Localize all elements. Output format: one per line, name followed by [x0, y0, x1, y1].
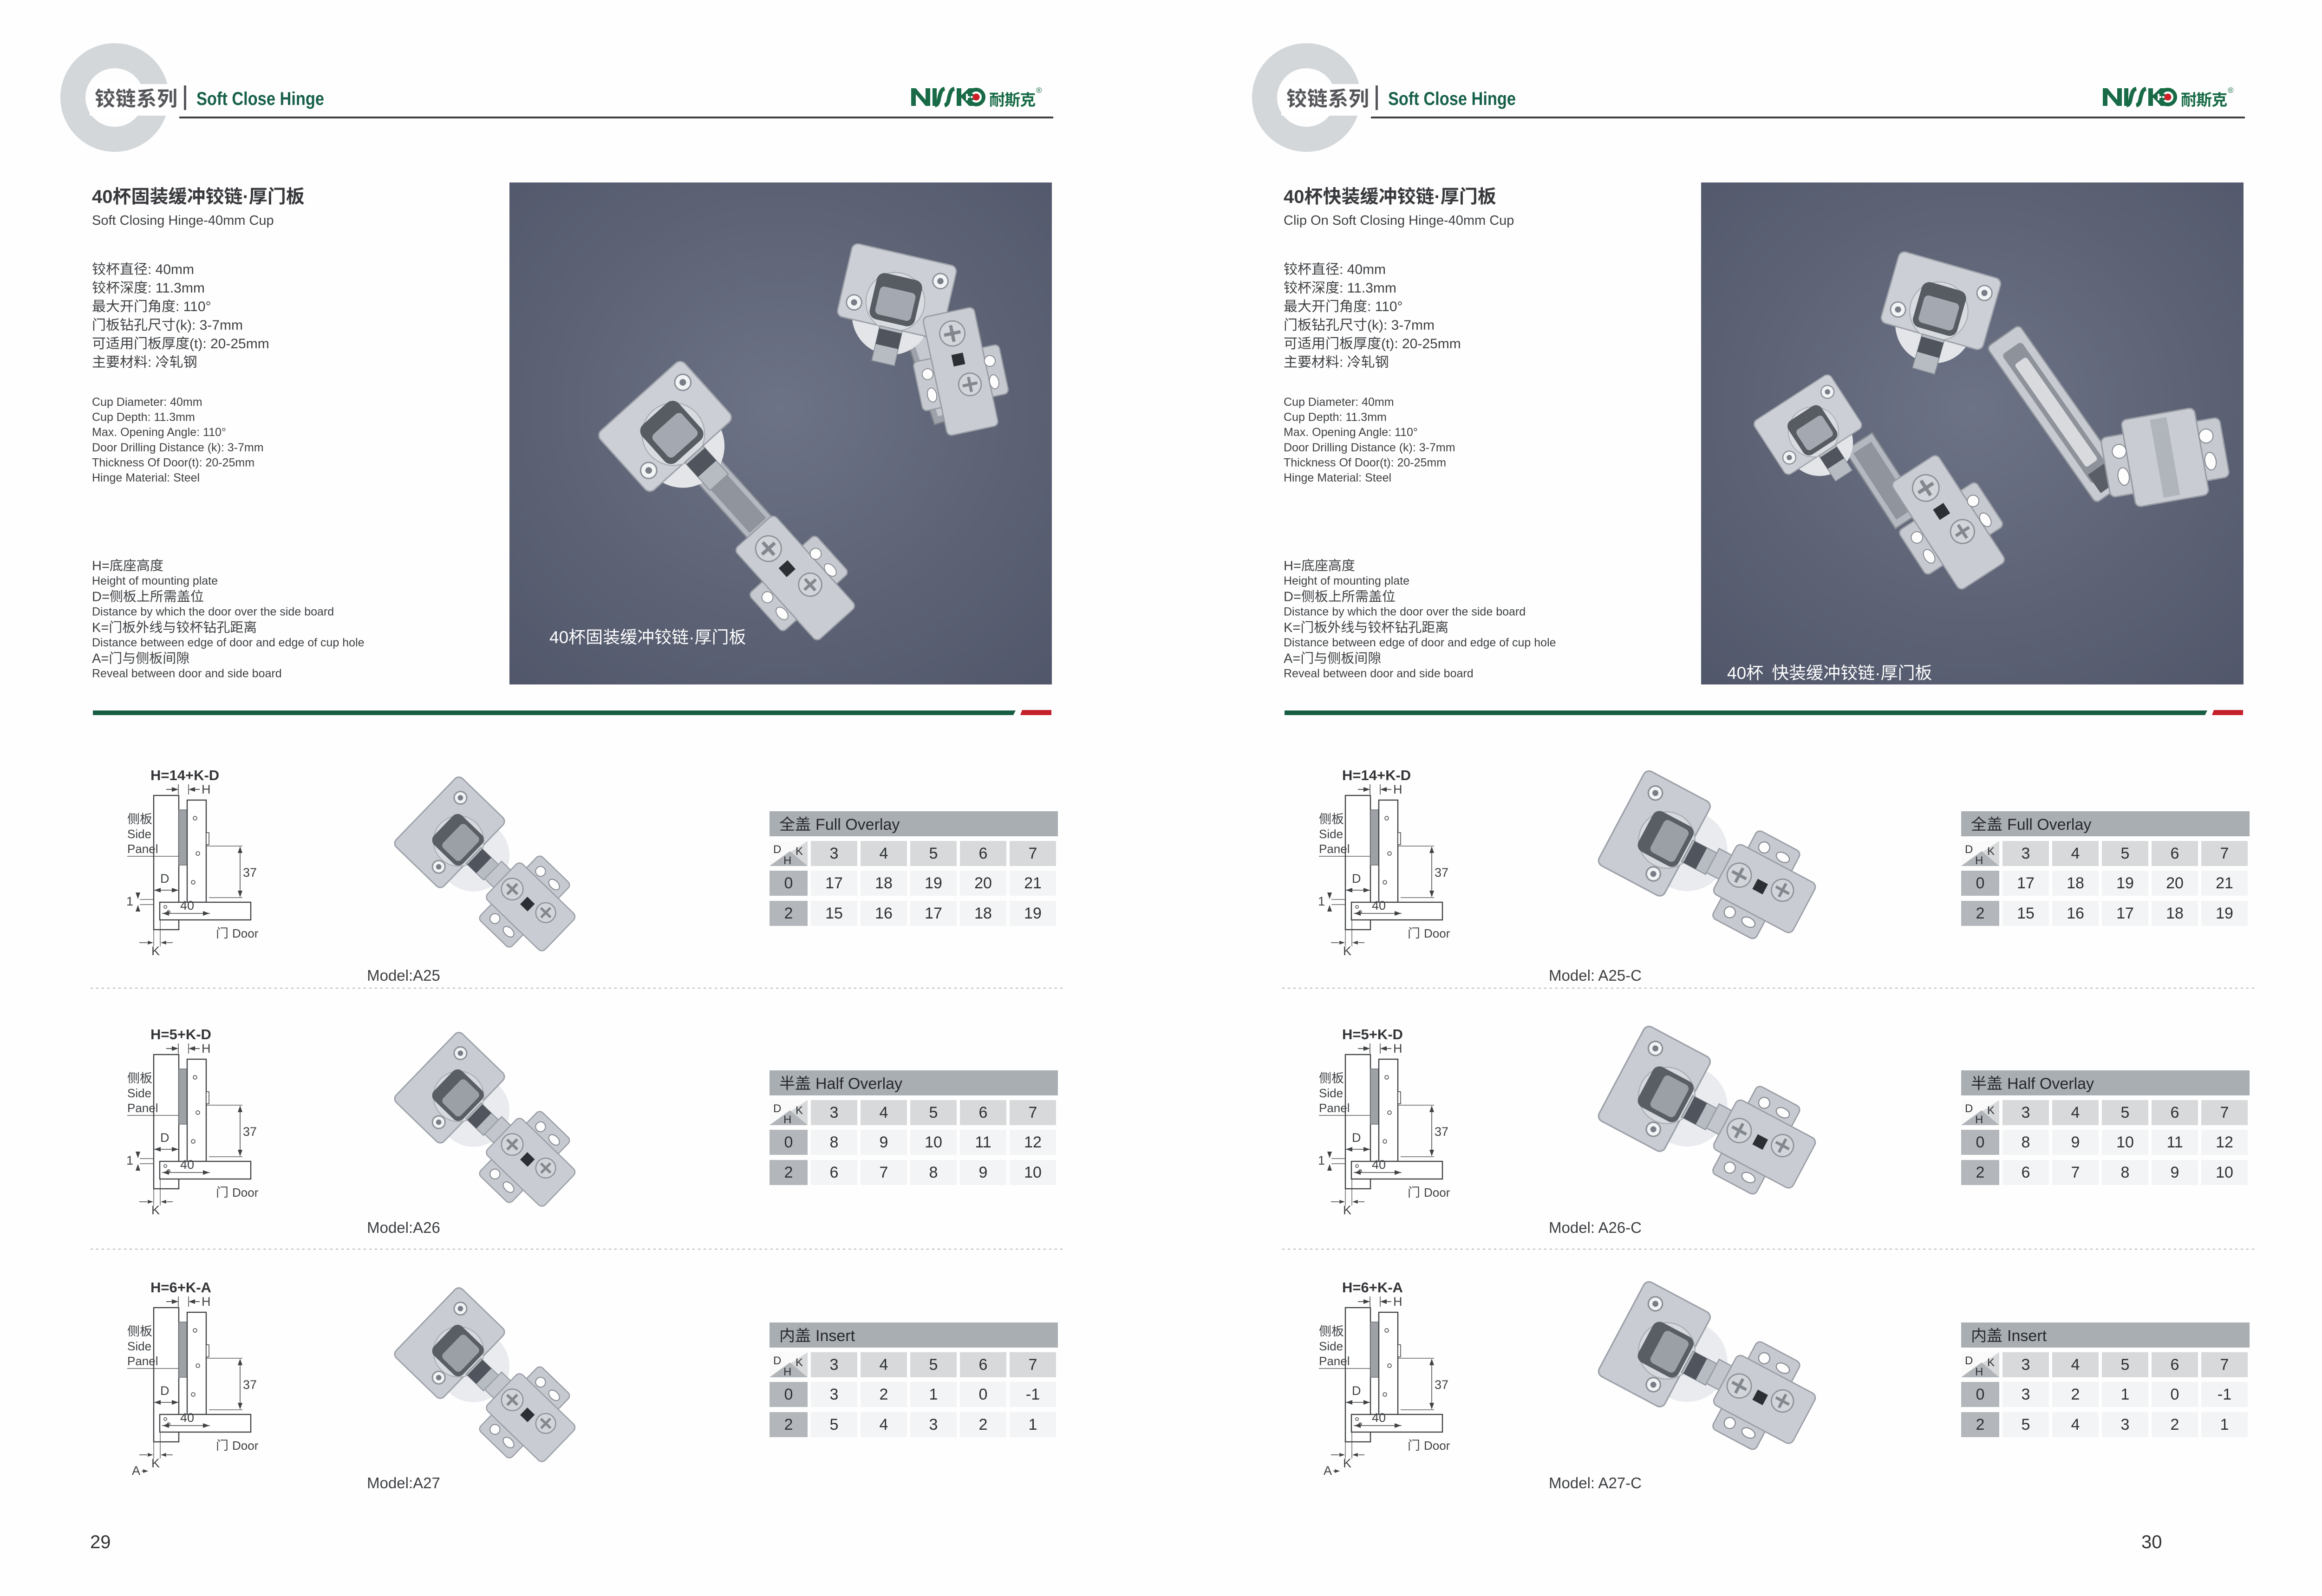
svg-text:H=6+K-A: H=6+K-A: [150, 1279, 211, 1296]
svg-text:Model: A25-C: Model: A25-C: [1549, 967, 1642, 984]
svg-text:Distance between edge of door: Distance between edge of door and edge o…: [92, 636, 365, 649]
svg-text:Panel: Panel: [1319, 1354, 1350, 1368]
svg-text:Panel: Panel: [1319, 1101, 1350, 1115]
svg-text:Side: Side: [127, 827, 151, 841]
svg-text:Model: A26-C: Model: A26-C: [1549, 1219, 1642, 1236]
svg-text:H=6+K-A: H=6+K-A: [1342, 1279, 1403, 1296]
svg-text:11: 11: [2166, 1133, 2183, 1151]
svg-text:2: 2: [784, 1416, 793, 1433]
svg-text:17: 17: [2116, 905, 2134, 922]
svg-text:2: 2: [1976, 1164, 1985, 1181]
svg-text:: 40mm: : 40mm: [148, 262, 194, 277]
svg-text:7: 7: [1029, 1104, 1037, 1121]
svg-text:21: 21: [1024, 874, 1042, 892]
svg-text:Hinge Material: Steel: Hinge Material: Steel: [92, 471, 200, 484]
svg-text:7: 7: [880, 1164, 888, 1181]
svg-text:8: 8: [2121, 1164, 2130, 1181]
svg-text:3: 3: [830, 1356, 839, 1374]
svg-text:K: K: [1987, 1356, 1995, 1369]
svg-text:D: D: [1965, 1355, 1973, 1367]
svg-text:Reveal between door and side b: Reveal between door and side board: [92, 667, 282, 680]
svg-text:3: 3: [830, 845, 839, 862]
svg-text:40: 40: [1284, 187, 1304, 207]
svg-text:D: D: [773, 843, 781, 856]
svg-text:5: 5: [830, 1416, 839, 1433]
svg-text:4: 4: [2071, 845, 2080, 862]
svg-text:0: 0: [1976, 874, 1985, 892]
svg-text:H: H: [1393, 782, 1402, 796]
svg-text:Max. Opening Angle: 110°: Max. Opening Angle: 110°: [92, 426, 226, 439]
svg-text:Full Overlay: Full Overlay: [2007, 816, 2091, 834]
svg-text:16: 16: [875, 905, 893, 922]
svg-text:2: 2: [2071, 1386, 2080, 1403]
svg-text:(k): 3-7mm: (k): 3-7mm: [176, 318, 243, 333]
svg-text:Cup Diameter: 40mm: Cup Diameter: 40mm: [92, 396, 202, 409]
svg-text:16: 16: [2067, 905, 2084, 922]
svg-text:1: 1: [1318, 1153, 1325, 1167]
svg-text:8: 8: [830, 1133, 839, 1151]
svg-text:D: D: [773, 1102, 781, 1115]
svg-text:1: 1: [126, 894, 133, 908]
svg-text:K: K: [151, 944, 160, 958]
svg-text:6: 6: [2022, 1164, 2030, 1181]
svg-text:H=5+K-D: H=5+K-D: [1342, 1026, 1403, 1042]
svg-text:D=: D=: [92, 590, 110, 605]
svg-text:Cup Depth: 11.3mm: Cup Depth: 11.3mm: [1284, 411, 1387, 424]
svg-text:9: 9: [979, 1164, 988, 1181]
svg-text:H=5+K-D: H=5+K-D: [150, 1026, 211, 1042]
svg-text:Distance between edge of door: Distance between edge of door and edge o…: [1284, 636, 1556, 649]
svg-text:Half Overlay: Half Overlay: [2007, 1075, 2094, 1093]
svg-text:40: 40: [180, 899, 194, 912]
svg-text:Clip On Soft Closing Hinge-40m: Clip On Soft Closing Hinge-40mm Cup: [1284, 213, 1514, 228]
svg-text:Soft Close Hinge: Soft Close Hinge: [1388, 89, 1516, 109]
svg-text:19: 19: [2216, 905, 2233, 922]
svg-text:D: D: [160, 1384, 170, 1398]
svg-text:29: 29: [90, 1532, 111, 1552]
svg-text:4: 4: [2071, 1416, 2080, 1433]
svg-text:Door: Door: [232, 1439, 259, 1453]
svg-text:0: 0: [979, 1386, 988, 1403]
svg-text:D: D: [1965, 1102, 1973, 1115]
svg-text:·: ·: [1875, 664, 1880, 683]
svg-text:2: 2: [979, 1416, 988, 1433]
svg-text:17: 17: [2017, 874, 2035, 892]
svg-text:A: A: [132, 1464, 140, 1478]
svg-text:7: 7: [2220, 1356, 2229, 1374]
svg-text:3: 3: [2022, 845, 2030, 862]
svg-text:Model:A25: Model:A25: [367, 967, 440, 984]
svg-text:7: 7: [1029, 845, 1037, 862]
svg-text:37: 37: [243, 1125, 257, 1139]
svg-text:2: 2: [2171, 1416, 2179, 1433]
svg-text:5: 5: [929, 845, 938, 862]
svg-text:Height of mounting plate: Height of mounting plate: [1284, 574, 1409, 587]
svg-text:D=: D=: [1284, 590, 1301, 605]
svg-text:: 110°: : 110°: [1367, 299, 1403, 314]
svg-text:21: 21: [2216, 874, 2233, 892]
svg-text:Door: Door: [1424, 1439, 1450, 1453]
svg-text:H: H: [783, 854, 791, 867]
svg-text:1: 1: [126, 1153, 133, 1167]
svg-text:37: 37: [243, 866, 257, 879]
svg-text:20: 20: [974, 874, 992, 892]
svg-text:Panel: Panel: [1319, 842, 1350, 856]
svg-text:Door: Door: [232, 1186, 259, 1199]
svg-text:(t): 20-25mm: (t): 20-25mm: [1381, 336, 1461, 352]
svg-text:6: 6: [2171, 1356, 2179, 1374]
svg-text:: 11.3mm: : 11.3mm: [148, 280, 205, 296]
svg-text:3: 3: [2022, 1104, 2030, 1121]
svg-text:: 40mm: : 40mm: [1339, 262, 1386, 277]
svg-text:1: 1: [1318, 894, 1325, 908]
svg-text:K: K: [151, 1456, 160, 1470]
svg-text:2: 2: [784, 1164, 793, 1181]
svg-text:D: D: [1352, 1384, 1361, 1398]
svg-text:H: H: [783, 1366, 791, 1378]
svg-text:8: 8: [2022, 1133, 2030, 1151]
svg-text:®: ®: [1036, 86, 1042, 95]
svg-text:18: 18: [2166, 905, 2184, 922]
svg-text:5: 5: [929, 1356, 938, 1374]
svg-text:9: 9: [880, 1133, 888, 1151]
svg-text::: :: [1339, 355, 1343, 370]
svg-text:10: 10: [2216, 1164, 2233, 1181]
svg-text:12: 12: [2216, 1133, 2233, 1151]
svg-text:K: K: [796, 1104, 803, 1117]
svg-text:3: 3: [2022, 1386, 2030, 1403]
svg-text:Cup Depth: 11.3mm: Cup Depth: 11.3mm: [92, 411, 195, 424]
svg-text:D: D: [1352, 872, 1361, 886]
svg-text:40: 40: [1372, 899, 1386, 912]
svg-text:H=: H=: [92, 559, 110, 573]
svg-text:A: A: [1324, 1464, 1332, 1478]
svg-text:0: 0: [1976, 1386, 1985, 1403]
svg-text:18: 18: [2067, 874, 2084, 892]
svg-text:6: 6: [979, 1356, 988, 1374]
svg-text::: :: [148, 355, 151, 370]
svg-text:Panel: Panel: [127, 1354, 158, 1368]
svg-text:D: D: [773, 1355, 781, 1367]
svg-text:K: K: [1343, 944, 1351, 958]
svg-text:Door: Door: [1424, 1186, 1450, 1199]
svg-text:K=: K=: [92, 620, 109, 635]
svg-text:: 110°: : 110°: [176, 299, 211, 314]
svg-text:2: 2: [1976, 905, 1985, 922]
svg-text:1: 1: [2121, 1386, 2130, 1403]
svg-text:H: H: [1975, 1114, 1983, 1126]
svg-text:7: 7: [2220, 1104, 2229, 1121]
svg-text:5: 5: [2121, 1356, 2130, 1374]
svg-text:Model: A27-C: Model: A27-C: [1549, 1474, 1642, 1492]
svg-text:30: 30: [2141, 1532, 2162, 1552]
svg-text:10: 10: [1024, 1164, 1042, 1181]
svg-text:D: D: [1352, 1131, 1361, 1145]
svg-text:3: 3: [830, 1386, 839, 1403]
svg-text:Side: Side: [1319, 1086, 1343, 1100]
svg-text:40: 40: [549, 628, 568, 647]
svg-text:5: 5: [2121, 1104, 2130, 1121]
svg-text:K: K: [1987, 1104, 1995, 1117]
svg-text:37: 37: [1435, 1378, 1448, 1392]
svg-text:9: 9: [2071, 1133, 2080, 1151]
svg-text:Height of mounting plate: Height of mounting plate: [92, 574, 218, 587]
svg-text:18: 18: [974, 905, 992, 922]
svg-text:15: 15: [825, 905, 843, 922]
svg-text:K=: K=: [1284, 620, 1300, 635]
svg-text:40: 40: [1372, 1158, 1386, 1172]
svg-text:6: 6: [830, 1164, 839, 1181]
svg-text:1: 1: [929, 1386, 938, 1403]
svg-text:Door: Door: [1424, 926, 1450, 940]
svg-text:18: 18: [875, 874, 893, 892]
svg-text:0: 0: [784, 874, 793, 892]
svg-text:3: 3: [2121, 1416, 2130, 1433]
svg-text:40: 40: [1372, 1411, 1386, 1425]
svg-text:K: K: [796, 845, 803, 858]
svg-text:Half Overlay: Half Overlay: [815, 1075, 902, 1093]
svg-text:Panel: Panel: [127, 1101, 158, 1115]
svg-text:1: 1: [1029, 1416, 1037, 1433]
svg-text:Door Drilling Distance (k): 3-: Door Drilling Distance (k): 3-7mm: [1284, 441, 1455, 454]
svg-text:37: 37: [1435, 1125, 1448, 1139]
svg-text:3: 3: [929, 1416, 938, 1433]
svg-text:Insert: Insert: [2007, 1327, 2047, 1345]
svg-text:·: ·: [242, 187, 248, 207]
svg-text:K: K: [1343, 1203, 1351, 1217]
svg-text:K: K: [1987, 845, 1995, 858]
svg-text:H: H: [202, 1042, 211, 1055]
svg-text:37: 37: [243, 1378, 257, 1392]
svg-text:A=: A=: [92, 651, 109, 666]
svg-text:Thickness Of Door(t): 20-25mm: Thickness Of Door(t): 20-25mm: [92, 456, 254, 469]
svg-text:40: 40: [92, 187, 113, 207]
svg-text:A=: A=: [1284, 651, 1300, 666]
svg-text:20: 20: [2166, 874, 2184, 892]
svg-text:4: 4: [2071, 1104, 2080, 1121]
svg-text:7: 7: [2220, 845, 2229, 862]
svg-text:10: 10: [925, 1133, 942, 1151]
svg-text:-1: -1: [1026, 1386, 1040, 1403]
svg-text:17: 17: [825, 874, 843, 892]
svg-text:2: 2: [880, 1386, 888, 1403]
svg-text:·: ·: [689, 628, 694, 647]
svg-text:Soft Closing Hinge-40mm Cup: Soft Closing Hinge-40mm Cup: [92, 213, 274, 228]
svg-text:H=: H=: [1284, 559, 1301, 573]
svg-text:Side: Side: [127, 1086, 151, 1100]
svg-text:9: 9: [2171, 1164, 2179, 1181]
svg-text:H: H: [1975, 1366, 1983, 1378]
svg-text:5: 5: [2121, 845, 2130, 862]
svg-text:4: 4: [880, 845, 888, 862]
svg-text:K: K: [1343, 1456, 1351, 1470]
svg-text:11: 11: [975, 1133, 991, 1151]
svg-text:2: 2: [1976, 1416, 1985, 1433]
svg-text:12: 12: [1024, 1133, 1042, 1151]
svg-text:H=14+K-D: H=14+K-D: [150, 767, 219, 783]
svg-text:H: H: [1393, 1042, 1402, 1055]
svg-text:5: 5: [2022, 1416, 2030, 1433]
svg-text:(t): 20-25mm: (t): 20-25mm: [189, 336, 269, 352]
svg-text:Cup Diameter: 40mm: Cup Diameter: 40mm: [1284, 396, 1394, 409]
svg-text:0: 0: [1976, 1133, 1985, 1151]
svg-text:6: 6: [2171, 1104, 2179, 1121]
svg-text:Full Overlay: Full Overlay: [815, 816, 900, 834]
svg-text:Side: Side: [1319, 1339, 1343, 1353]
svg-text:Side: Side: [1319, 827, 1343, 841]
svg-text:4: 4: [880, 1104, 888, 1121]
svg-text:Distance by which the door ove: Distance by which the door over the side…: [92, 606, 334, 619]
svg-text:4: 4: [2071, 1356, 2080, 1374]
svg-text:Soft Close Hinge: Soft Close Hinge: [196, 89, 324, 109]
svg-text:19: 19: [2116, 874, 2134, 892]
svg-text:H: H: [1393, 1295, 1402, 1309]
svg-text:H: H: [1975, 854, 1983, 867]
svg-text:Door Drilling Distance (k): 3-: Door Drilling Distance (k): 3-7mm: [92, 441, 264, 454]
svg-text:Max. Opening Angle: 110°: Max. Opening Angle: 110°: [1284, 426, 1418, 439]
svg-text:3: 3: [2022, 1356, 2030, 1374]
svg-text:H: H: [783, 1114, 791, 1126]
svg-text:H: H: [202, 782, 211, 796]
svg-text:15: 15: [2017, 905, 2035, 922]
svg-text:H: H: [202, 1295, 211, 1309]
svg-text:-1: -1: [2218, 1386, 2231, 1403]
svg-text:Hinge Material: Steel: Hinge Material: Steel: [1284, 471, 1391, 484]
svg-text:D: D: [1965, 843, 1973, 856]
svg-text:8: 8: [929, 1164, 938, 1181]
svg-text:Thickness Of Door(t): 20-25mm: Thickness Of Door(t): 20-25mm: [1284, 456, 1446, 469]
svg-text:37: 37: [1435, 866, 1448, 879]
svg-text:40: 40: [180, 1158, 194, 1172]
svg-text:Model:A27: Model:A27: [367, 1474, 440, 1492]
svg-text:4: 4: [880, 1356, 888, 1374]
svg-text:Model:A26: Model:A26: [367, 1219, 440, 1236]
svg-text:2: 2: [784, 905, 793, 922]
svg-text:40: 40: [1727, 664, 1746, 683]
svg-text:6: 6: [2171, 845, 2179, 862]
svg-text:(k): 3-7mm: (k): 3-7mm: [1367, 318, 1435, 333]
svg-text:10: 10: [2116, 1133, 2134, 1151]
svg-text:Insert: Insert: [815, 1327, 855, 1345]
svg-text:17: 17: [925, 905, 942, 922]
svg-text:3: 3: [830, 1104, 839, 1121]
svg-text:Panel: Panel: [127, 842, 158, 856]
svg-text:1: 1: [2220, 1416, 2229, 1433]
svg-text:19: 19: [925, 874, 942, 892]
svg-text:19: 19: [1024, 905, 1042, 922]
svg-text:®: ®: [2228, 86, 2234, 95]
svg-text:D: D: [160, 872, 170, 886]
svg-text:Reveal between door and side b: Reveal between door and side board: [1284, 667, 1474, 680]
svg-text:Distance by which the door ove: Distance by which the door over the side…: [1284, 606, 1526, 619]
svg-text:0: 0: [2171, 1386, 2179, 1403]
svg-text:Side: Side: [127, 1339, 151, 1353]
svg-text:H=14+K-D: H=14+K-D: [1342, 767, 1411, 783]
svg-text:D: D: [160, 1131, 170, 1145]
svg-text:40: 40: [180, 1411, 194, 1425]
svg-text:7: 7: [1029, 1356, 1037, 1374]
svg-text:6: 6: [979, 1104, 988, 1121]
svg-text:·: ·: [1434, 187, 1440, 207]
svg-text:: 11.3mm: : 11.3mm: [1339, 280, 1396, 296]
svg-text:K: K: [796, 1356, 803, 1369]
svg-text:K: K: [151, 1203, 160, 1217]
svg-text:0: 0: [784, 1386, 793, 1403]
svg-text:7: 7: [2071, 1164, 2080, 1181]
svg-text:0: 0: [784, 1133, 793, 1151]
svg-text:6: 6: [979, 845, 988, 862]
svg-text:Door: Door: [232, 926, 259, 940]
svg-text:5: 5: [929, 1104, 938, 1121]
svg-text:4: 4: [880, 1416, 888, 1433]
